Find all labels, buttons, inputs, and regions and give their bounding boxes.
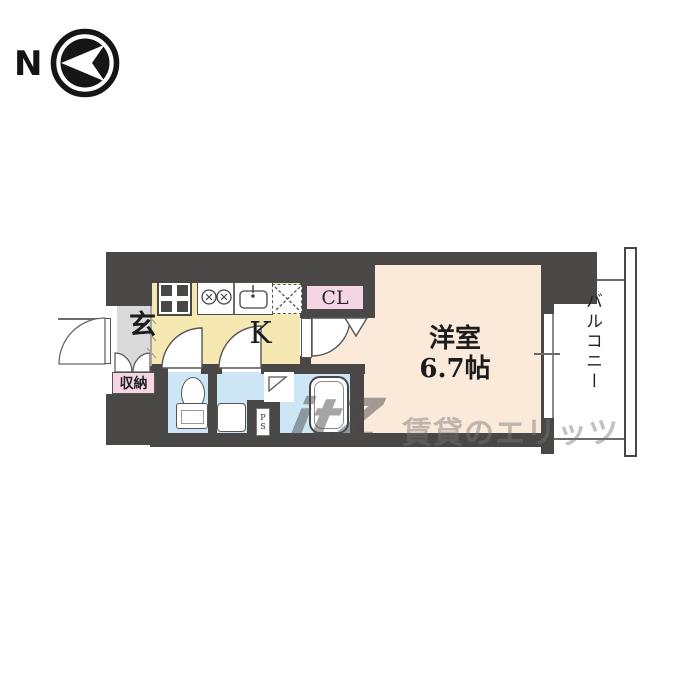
balcony-window (541, 314, 554, 418)
wall-toilet-washroom (208, 373, 217, 435)
kitchen-label: K (238, 316, 283, 351)
balcony-railing (624, 247, 637, 457)
corner-block-icon (161, 285, 172, 296)
bathtub-inner (314, 381, 344, 429)
closet-label: CL (321, 287, 348, 309)
wall-left-bottom-block (106, 394, 153, 445)
north-label: N (14, 44, 42, 84)
pipe-space-box: PS (256, 408, 270, 436)
balcony-label: バルコニー (580, 292, 605, 447)
kitchen-counter (197, 282, 273, 315)
kitchen-corner-unit-icon (157, 281, 192, 316)
balcony-top-line (597, 279, 626, 281)
corner-block-icon (161, 301, 172, 312)
storage-box: 収納 (112, 372, 155, 394)
toilet-tank-icon (176, 403, 208, 429)
wall-right-upper (541, 302, 554, 314)
corner-block-icon (177, 301, 188, 312)
western-room-name: 洋室 (385, 324, 525, 354)
pipe-space-label: PS (259, 413, 268, 431)
storage-label: 収納 (120, 373, 148, 393)
toilet-tank-inner (181, 410, 204, 424)
corner-block-icon (177, 285, 188, 296)
entrance-label: 玄 (120, 310, 159, 337)
bathroom-doorway-notch (264, 372, 294, 402)
floorplan-page: { "compass": { "north_label": "N" }, "ro… (0, 0, 700, 700)
main-room-door-leaf (301, 318, 312, 358)
counter-divider (233, 283, 235, 314)
compass-icon (50, 28, 120, 98)
closet-box: CL (307, 286, 363, 309)
porch-line (58, 318, 100, 320)
western-room-label: 洋室 6.7帖 (385, 324, 525, 384)
western-room-size: 6.7帖 (385, 354, 525, 384)
laundry-space-icon (272, 284, 302, 314)
wall-top-left-column (106, 252, 152, 306)
window-center-tick (534, 353, 560, 355)
washbasin-icon (217, 403, 246, 432)
wall-bath-right (350, 370, 364, 435)
bathtub-icon (309, 376, 349, 434)
entrance-door-leaf (99, 318, 111, 364)
wall-bottom (150, 433, 554, 447)
